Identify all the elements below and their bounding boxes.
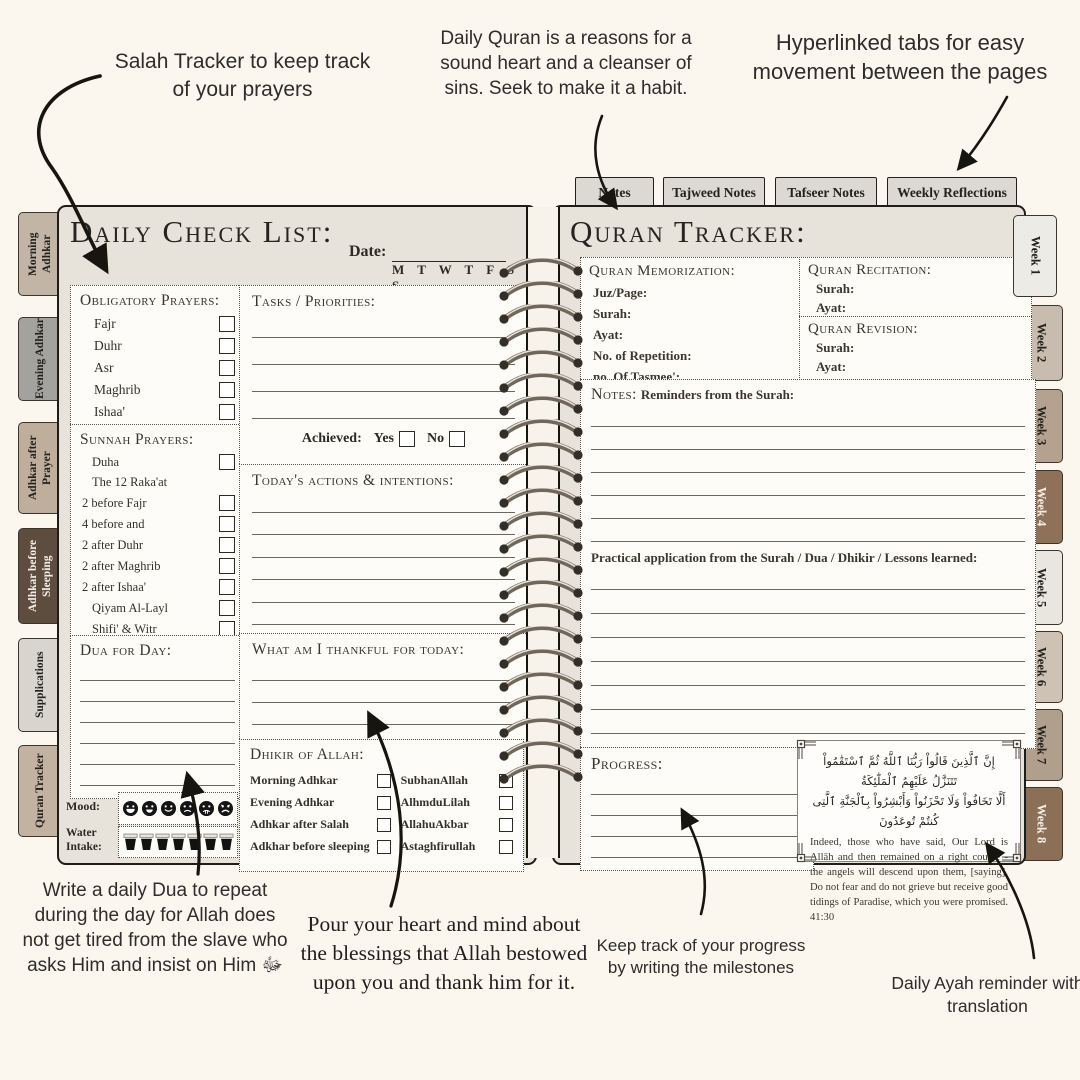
- writing-line: [591, 519, 1025, 542]
- mood-happy-icon[interactable]: [141, 800, 158, 817]
- corner-ornament: [796, 739, 816, 759]
- date-label: Date:: [349, 243, 386, 261]
- writing-line: [252, 365, 515, 392]
- prayer-checkbox[interactable]: [219, 579, 235, 595]
- prayer-checkbox[interactable]: [219, 360, 235, 376]
- annotation-salah-tracker: Salah Tracker to keep track of your pray…: [110, 48, 375, 103]
- dua-for-day-box[interactable]: Dua for Day:: [70, 635, 245, 799]
- water-intake-label: Water Intake:: [66, 826, 114, 855]
- prayer-label: Duha: [92, 455, 119, 470]
- writing-line: [591, 450, 1025, 473]
- ayah-arabic-line1: إِنَّ ٱلَّذِينَ قَالُواْ رَبُّنَا ٱللَّه…: [810, 751, 1008, 791]
- quran-recitation-box[interactable]: Quran Recitation: Surah: Ayat:: [799, 257, 1032, 320]
- tasks-priorities-title: Tasks / Priorities:: [252, 293, 515, 311]
- todays-actions-box[interactable]: Today's actions & intentions:: [239, 464, 528, 645]
- spiral-coil: [496, 281, 586, 301]
- corner-ornament: [1002, 739, 1022, 759]
- achieved-yes-label: Yes: [374, 431, 394, 447]
- writing-line: [80, 702, 235, 723]
- annotation-daily-quran: Daily Quran is a reasons for a sound hea…: [435, 26, 697, 101]
- spiral-coils: [496, 258, 586, 784]
- progress-lines: [591, 774, 803, 858]
- left-page-daily-check-list: Daily Check List: Date: M T W T F S S Ob…: [57, 205, 537, 865]
- writing-line: [252, 580, 515, 603]
- spiral-coil: [496, 327, 586, 347]
- quran-revision-title: Quran Revision:: [808, 321, 1023, 338]
- writing-line: [80, 723, 235, 744]
- writing-line: [252, 311, 515, 338]
- mood-sad-icon[interactable]: [179, 800, 196, 817]
- notes-box[interactable]: Notes: Reminders from the Surah: Practic…: [580, 379, 1036, 749]
- thankful-title: What am I thankful for today:: [252, 641, 515, 659]
- prayer-checkbox[interactable]: [219, 537, 235, 553]
- memorization-field: No. of Repetition:: [593, 348, 801, 364]
- ayah-arabic-line2: أَلَّا تَخَافُواْ وَلَا تَحْزَنُواْ وَأَ…: [810, 791, 1008, 831]
- spiral-coil: [496, 534, 586, 554]
- obligatory-prayers-title: Obligatory Prayers:: [80, 292, 235, 310]
- quran-memorization-title: Quran Memorization:: [589, 263, 801, 280]
- prayer-label: Duhr: [94, 338, 122, 354]
- spiral-coil: [496, 465, 586, 485]
- water-cup-icon[interactable]: [219, 833, 234, 851]
- notes-practical-label: Practical application from the Surah / D…: [591, 550, 1025, 566]
- quran-revision-box[interactable]: Quran Revision: Surah: Ayat:: [799, 316, 1032, 384]
- corner-ornament: [796, 843, 816, 863]
- dhikir-checkbox[interactable]: [499, 818, 513, 832]
- writing-line: [591, 404, 1025, 427]
- dhikir-label: AlhmduLilah: [401, 795, 470, 810]
- writing-line: [252, 338, 515, 365]
- tasks-lines: [252, 311, 515, 419]
- memorization-field: Juz/Page:: [593, 285, 801, 301]
- dua-for-day-title: Dua for Day:: [80, 642, 235, 660]
- prayer-checkbox[interactable]: [219, 404, 235, 420]
- notes-subtitle: Reminders from the Surah:: [641, 387, 794, 402]
- spiral-coil: [496, 718, 586, 738]
- tasks-priorities-box[interactable]: Tasks / Priorities: Achieved: Yes No: [239, 285, 528, 470]
- revision-field: Ayat:: [816, 359, 1023, 375]
- spiral-coil: [496, 695, 586, 715]
- prayer-checkbox[interactable]: [219, 382, 235, 398]
- dhikir-label: Evening Adhkar: [250, 795, 334, 810]
- todays-actions-title: Today's actions & intentions:: [252, 472, 515, 490]
- prayer-checkbox[interactable]: [219, 454, 235, 470]
- dhikir-label: Morning Adhkar: [250, 773, 338, 788]
- corner-ornament: [1002, 843, 1022, 863]
- arrow-hyperlinked-tabs: [960, 97, 1007, 167]
- mood-laughing-icon[interactable]: [122, 800, 139, 817]
- water-cup-icon[interactable]: [123, 833, 138, 851]
- writing-line: [591, 590, 1025, 614]
- prayer-label: 2 after Ishaa': [82, 580, 146, 595]
- writing-line: [591, 638, 1025, 662]
- water-cups[interactable]: [123, 833, 234, 851]
- achieved-yes-checkbox[interactable]: [399, 431, 415, 447]
- annotation-thankful: Pour your heart and mind about the bless…: [295, 910, 593, 996]
- writing-line: [591, 774, 803, 795]
- prayer-label: 2 after Maghrib: [82, 559, 160, 574]
- top-tab-tafseer-notes[interactable]: Tafseer Notes: [775, 177, 877, 208]
- writing-line: [591, 473, 1025, 496]
- dhikir-checkbox[interactable]: [499, 840, 513, 854]
- writing-line: [80, 660, 235, 681]
- spiral-coil: [496, 626, 586, 646]
- writing-line: [252, 603, 515, 626]
- writing-line: [252, 392, 515, 419]
- writing-line: [591, 662, 1025, 686]
- week-tab-1[interactable]: Week 1: [1013, 215, 1057, 297]
- writing-line: [252, 513, 515, 536]
- dhikir-label: Adkhar before sleeping: [250, 839, 370, 854]
- achieved-label: Achieved:: [302, 431, 362, 447]
- spiral-coil: [496, 511, 586, 531]
- writing-line: [591, 496, 1025, 519]
- spiral-coil: [496, 258, 586, 278]
- prayer-label: 4 before and: [82, 517, 144, 532]
- dhikir-label: AllahuAkbar: [401, 817, 469, 832]
- writing-line: [80, 765, 235, 786]
- recitation-field: Ayat:: [816, 300, 1023, 316]
- ayah-translation: Indeed, those who have said, Our Lord is…: [810, 835, 1008, 925]
- prayer-label: 2 after Duhr: [82, 538, 143, 553]
- dhikir-label: SubhanAllah: [401, 773, 468, 788]
- prayer-checkbox[interactable]: [219, 558, 235, 574]
- prayer-label: Ishaa': [94, 404, 125, 420]
- prayer-label: Asr: [94, 360, 114, 376]
- left-page-title: Daily Check List:: [70, 214, 333, 250]
- mood-faces[interactable]: [122, 800, 234, 817]
- writing-line: [591, 614, 1025, 638]
- mood-tracker[interactable]: [118, 792, 238, 825]
- writing-line: [591, 686, 1025, 710]
- dhikir-checkbox[interactable]: [377, 818, 391, 832]
- quran-recitation-title: Quran Recitation:: [808, 262, 1023, 279]
- water-intake-tracker[interactable]: [118, 826, 238, 858]
- water-cup-icon[interactable]: [203, 833, 218, 851]
- spiral-coil: [496, 580, 586, 600]
- quran-memorization-box[interactable]: Quran Memorization: Juz/Page: Surah: Aya…: [580, 257, 810, 385]
- spiral-coil: [496, 304, 586, 324]
- annotation-daily-dua: Write a daily Dua to repeat during the d…: [20, 878, 290, 978]
- obligatory-prayers-box: Obligatory Prayers: Fajr Duhr Asr Maghri…: [70, 285, 245, 426]
- annotation-hyperlinked-tabs: Hyperlinked tabs for easy movement betwe…: [735, 28, 1065, 86]
- top-tab-tajweed-notes[interactable]: Tajweed Notes: [663, 177, 765, 208]
- dhikir-label: Adhkar after Salah: [250, 817, 349, 832]
- date-line[interactable]: [392, 237, 506, 262]
- right-page-quran-tracker: Quran Tracker: Quran Memorization: Juz/P…: [552, 205, 1026, 865]
- dhikir-checkbox[interactable]: [499, 796, 513, 810]
- dhikir-checkbox[interactable]: [377, 840, 391, 854]
- prayer-label: Qiyam Al-Layl: [92, 601, 168, 616]
- notes-lines-bottom: [591, 566, 1025, 734]
- sunnah-prayers-title: Sunnah Prayers:: [80, 431, 235, 449]
- writing-line: [80, 744, 235, 765]
- dhikir-checkbox[interactable]: [377, 774, 391, 788]
- prayer-label: Maghrib: [94, 382, 141, 398]
- writing-line: [252, 659, 515, 681]
- right-page-title: Quran Tracker:: [570, 214, 807, 250]
- spiral-coil: [496, 764, 586, 784]
- notes-title: Notes:: [591, 386, 637, 403]
- dhikir-box: Dhikir of Allah: Morning Adhkar Evening …: [239, 739, 524, 872]
- annotation-daily-ayah: Daily Ayah reminder with translation: [890, 972, 1080, 1018]
- revision-field: Surah:: [816, 340, 1023, 356]
- writing-line: [252, 681, 515, 703]
- prayer-checkbox[interactable]: [219, 495, 235, 511]
- writing-line: [252, 490, 515, 513]
- spiral-coil: [496, 741, 586, 761]
- actions-lines: [252, 490, 515, 625]
- mood-angry-icon[interactable]: [217, 800, 234, 817]
- thankful-box[interactable]: What am I thankful for today:: [239, 633, 528, 745]
- prayer-checkbox[interactable]: [219, 516, 235, 532]
- prayer-label: Fajr: [94, 316, 116, 332]
- spiral-coil: [496, 442, 586, 462]
- annotation-progress: Keep track of your progress by writing t…: [592, 935, 810, 980]
- writing-line: [591, 795, 803, 816]
- water-cup-icon[interactable]: [155, 833, 170, 851]
- writing-line: [591, 816, 803, 837]
- spiral-coil: [496, 350, 586, 370]
- mood-smile-icon[interactable]: [160, 800, 177, 817]
- water-cup-icon[interactable]: [171, 833, 186, 851]
- spiral-coil: [496, 373, 586, 393]
- spiral-coil: [496, 649, 586, 669]
- memorization-field: Ayat:: [593, 327, 801, 343]
- sunnah-prayers-box: Sunnah Prayers: Duha The 12 Raka'at 2 be…: [70, 424, 245, 636]
- water-cup-icon[interactable]: [187, 833, 202, 851]
- prayer-label: The 12 Raka'at: [92, 475, 167, 490]
- prayer-checkbox[interactable]: [219, 316, 235, 332]
- dua-lines: [80, 660, 235, 786]
- mood-crying-icon[interactable]: [198, 800, 215, 817]
- progress-box[interactable]: Progress:: [580, 747, 814, 871]
- writing-line: [252, 558, 515, 581]
- writing-line: [252, 703, 515, 725]
- top-tab-weekly-reflections[interactable]: Weekly Reflections: [887, 177, 1017, 208]
- dhikir-label: Astaghfirullah: [401, 839, 476, 854]
- prayer-checkbox[interactable]: [219, 338, 235, 354]
- prayer-label: 2 before Fajr: [82, 496, 147, 511]
- writing-line: [252, 535, 515, 558]
- spiral-coil: [496, 557, 586, 577]
- daily-ayah-box: إِنَّ ٱلَّذِينَ قَالُواْ رَبُّنَا ٱللَّه…: [797, 740, 1021, 862]
- spiral-coil: [496, 603, 586, 623]
- writing-line: [591, 427, 1025, 450]
- spiral-coil: [496, 396, 586, 416]
- water-cup-icon[interactable]: [139, 833, 154, 851]
- progress-title: Progress:: [591, 754, 803, 774]
- spiral-coil: [496, 488, 586, 508]
- writing-line: [591, 566, 1025, 590]
- prayer-checkbox[interactable]: [219, 600, 235, 616]
- spiral-coil: [496, 672, 586, 692]
- spiral-coil: [496, 419, 586, 439]
- dhikir-title: Dhikir of Allah:: [250, 746, 513, 764]
- writing-line: [80, 681, 235, 702]
- top-tab-notes[interactable]: Notes: [575, 177, 654, 208]
- memorization-field: Surah:: [593, 306, 801, 322]
- achieved-no-checkbox[interactable]: [449, 431, 465, 447]
- notes-lines-top: [591, 404, 1025, 542]
- achieved-no-label: No: [427, 431, 444, 447]
- recitation-field: Surah:: [816, 281, 1023, 297]
- writing-line: [591, 837, 803, 858]
- writing-line: [591, 710, 1025, 734]
- mood-label: Mood:: [66, 799, 100, 814]
- thankful-lines: [252, 659, 515, 725]
- dhikir-checkbox[interactable]: [377, 796, 391, 810]
